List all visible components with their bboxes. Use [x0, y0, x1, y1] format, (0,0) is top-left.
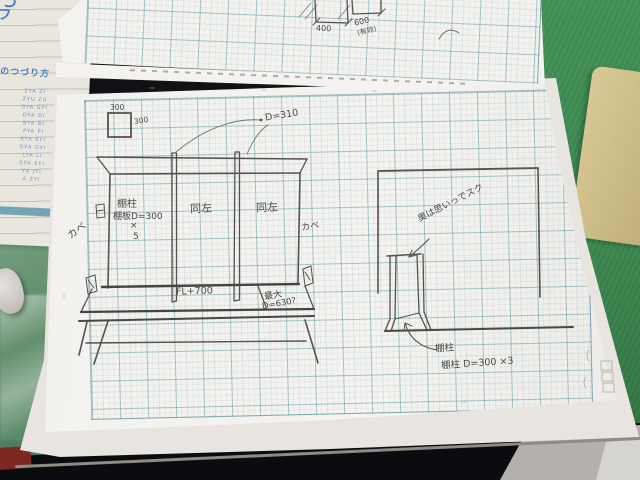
- post-label-side: 棚柱: [435, 339, 455, 354]
- upper-dim-400-label: 400: [316, 24, 332, 34]
- scale-square-top-label: 300: [110, 103, 124, 112]
- reference-sheet-title: のつづり方: [0, 64, 50, 80]
- counter-height-label: FL+700: [176, 285, 213, 297]
- multiplier-count: 5: [133, 232, 139, 242]
- blue-print-glyph-2: フ: [0, 4, 12, 25]
- wall-label-right: カベ: [300, 218, 320, 233]
- multiplier-sign: ×: [130, 221, 138, 231]
- shelf-board-label: 棚板D=300: [113, 209, 163, 222]
- same-as-left-bay2: 同左: [190, 199, 213, 216]
- notebook-photo-scene: つ フ のつづり方 ZYA ZI ZYU ZU GYA GYI DYA DI B…: [0, 0, 640, 480]
- same-as-left-bay3: 同左: [256, 198, 279, 215]
- graph-grid-main: [84, 89, 593, 420]
- reference-sheet-band: [0, 206, 58, 217]
- post-label-front: 棚柱: [117, 195, 137, 210]
